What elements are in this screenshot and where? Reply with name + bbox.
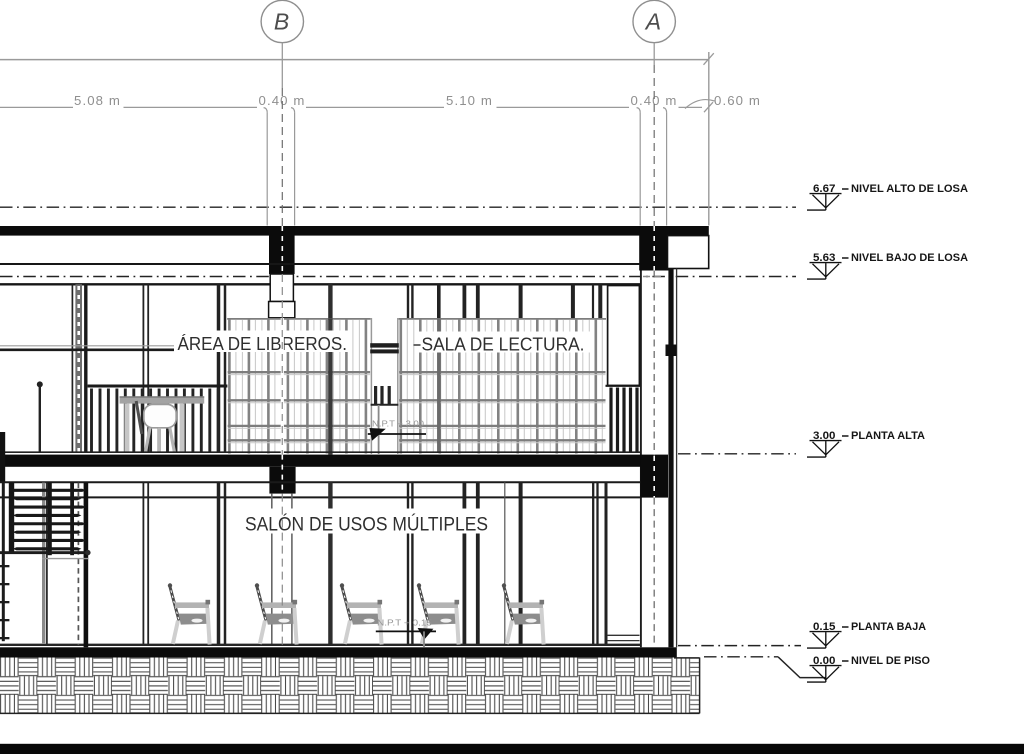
svg-text:0.00: 0.00 (813, 655, 836, 667)
svg-text:PLANTA ALTA: PLANTA ALTA (851, 430, 925, 442)
svg-text:A: A (644, 9, 661, 35)
svg-text:SALÓN DE USOS MÚLTIPLES: SALÓN DE USOS MÚLTIPLES (245, 514, 488, 536)
svg-text:5.10 m: 5.10 m (446, 93, 493, 108)
svg-text:ÁREA DE LIBREROS.: ÁREA DE LIBREROS. (178, 334, 348, 354)
svg-text:N.P.T + 3.00: N.P.T + 3.00 (372, 420, 425, 429)
svg-text:5.08 m: 5.08 m (74, 93, 121, 108)
svg-text:0.15: 0.15 (813, 621, 836, 633)
svg-text:6.67: 6.67 (813, 183, 836, 195)
svg-text:N.P.T + 0.15: N.P.T + 0.15 (377, 619, 433, 628)
svg-text:3.00: 3.00 (813, 430, 836, 442)
svg-text:NIVEL BAJO DE LOSA: NIVEL BAJO DE LOSA (851, 252, 968, 264)
svg-text:B: B (274, 9, 289, 35)
svg-text:0.60 m: 0.60 m (714, 93, 761, 108)
svg-text:SALA DE LECTURA.: SALA DE LECTURA. (422, 334, 585, 354)
svg-text:5.63: 5.63 (813, 252, 836, 264)
svg-text:PLANTA BAJA: PLANTA BAJA (851, 621, 926, 633)
svg-text:NIVEL ALTO DE LOSA: NIVEL ALTO DE LOSA (851, 183, 968, 195)
svg-text:NIVEL DE PISO: NIVEL DE PISO (851, 655, 930, 667)
